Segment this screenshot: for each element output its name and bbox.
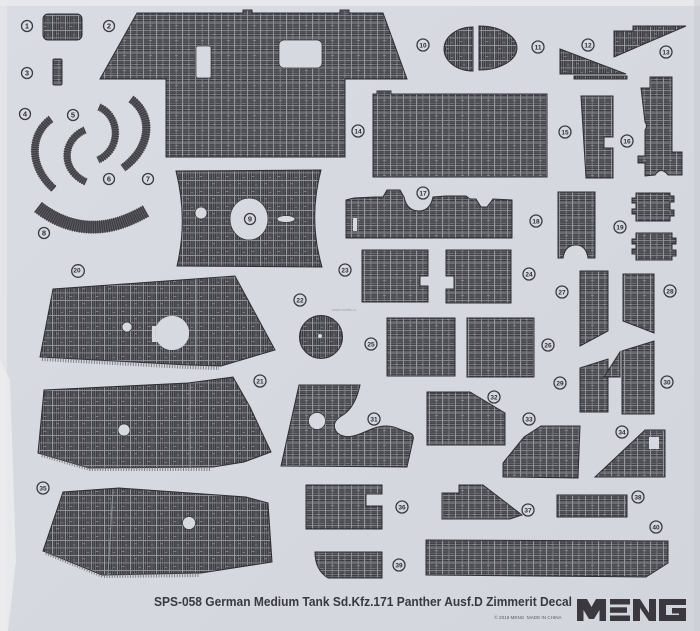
svg-text:31: 31 (370, 416, 378, 423)
svg-text:39: 39 (395, 562, 403, 569)
svg-text:19: 19 (616, 224, 624, 231)
svg-text:SPS-058 German Medium Tank Sd.: SPS-058 German Medium Tank Sd.Kfz.171 Pa… (154, 595, 572, 609)
svg-text:18: 18 (532, 218, 540, 225)
svg-text:30: 30 (663, 379, 671, 386)
svg-text:22: 22 (296, 297, 304, 304)
svg-text:2: 2 (107, 22, 111, 31)
svg-text:25: 25 (367, 341, 375, 348)
svg-text:9: 9 (248, 215, 252, 224)
svg-text:20: 20 (73, 267, 81, 274)
svg-text:1: 1 (25, 22, 29, 31)
svg-text:14: 14 (354, 128, 362, 135)
svg-text:6: 6 (107, 175, 111, 184)
svg-text:37: 37 (524, 507, 532, 514)
svg-text:3: 3 (25, 69, 29, 78)
svg-text:33: 33 (525, 416, 533, 423)
svg-text:24: 24 (525, 271, 533, 278)
svg-text:15: 15 (561, 129, 569, 136)
svg-text:amala models.ru: amala models.ru (332, 308, 356, 312)
svg-text:40: 40 (652, 524, 660, 531)
svg-text:23: 23 (341, 267, 349, 274)
svg-text:36: 36 (398, 504, 406, 511)
svg-text:17: 17 (419, 190, 427, 197)
svg-text:© 2018 MENG MADE IN CHINA: © 2018 MENG MADE IN CHINA (494, 614, 562, 620)
svg-text:32: 32 (490, 394, 498, 401)
svg-text:5: 5 (71, 111, 75, 120)
svg-text:34: 34 (618, 429, 626, 436)
svg-text:13: 13 (662, 49, 670, 56)
svg-text:11: 11 (535, 44, 542, 51)
svg-text:26: 26 (544, 342, 552, 349)
svg-text:16: 16 (623, 138, 631, 145)
svg-text:35: 35 (39, 485, 47, 492)
svg-text:12: 12 (584, 42, 592, 49)
svg-text:21: 21 (256, 378, 264, 385)
svg-text:28: 28 (666, 288, 674, 295)
svg-text:29: 29 (556, 380, 564, 387)
svg-text:27: 27 (558, 289, 566, 296)
svg-text:7: 7 (146, 175, 150, 184)
svg-text:8: 8 (42, 229, 46, 238)
svg-text:10: 10 (419, 42, 427, 49)
svg-text:38: 38 (634, 494, 642, 501)
